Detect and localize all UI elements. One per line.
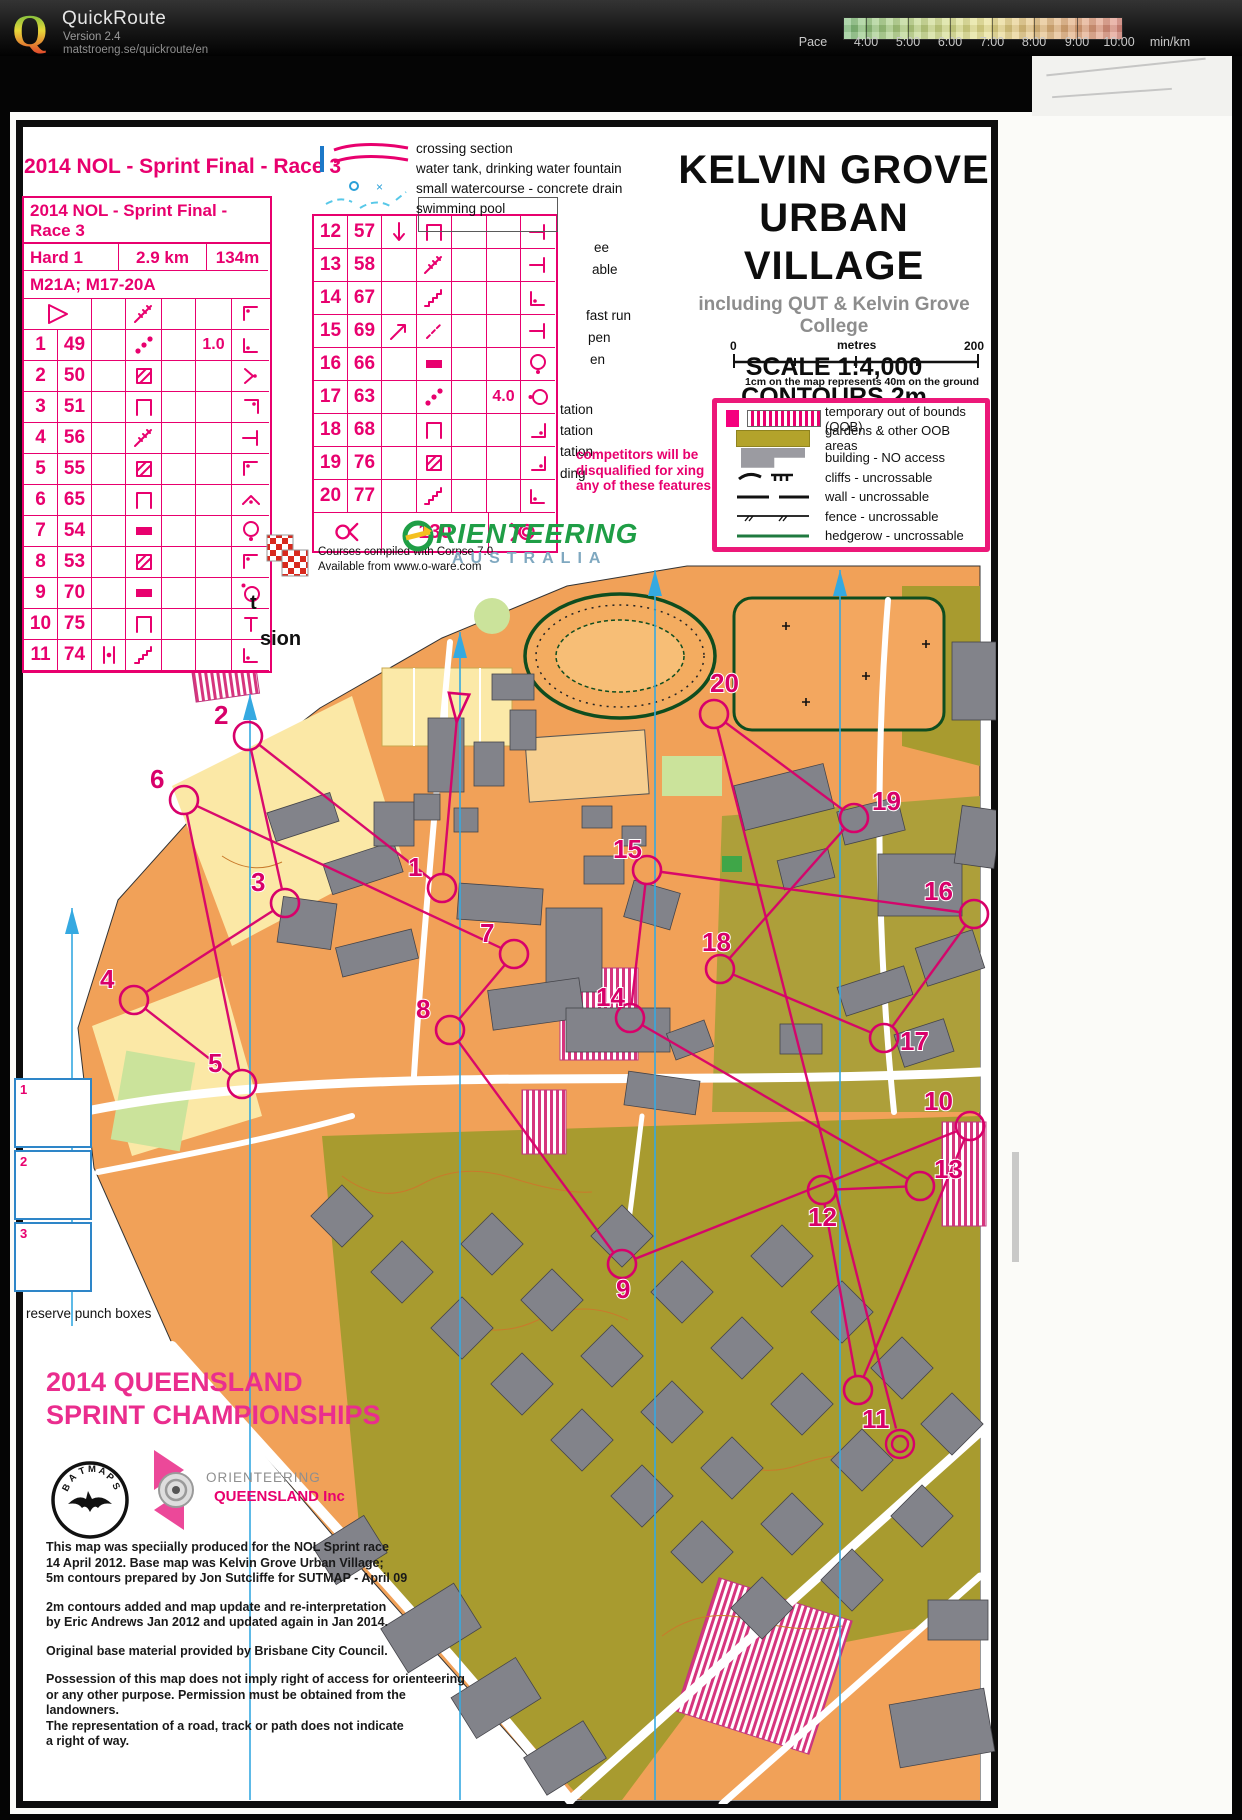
control-number: 13 bbox=[314, 249, 348, 282]
championships-line: SPRINT CHAMPIONSHIPS bbox=[46, 1399, 381, 1432]
control-number-label: 2 bbox=[214, 700, 228, 730]
down-arrow-icon bbox=[386, 219, 412, 245]
app-title: QuickRoute bbox=[62, 8, 166, 30]
warning-line: any of these features bbox=[576, 478, 736, 494]
control-code: 54 bbox=[58, 516, 92, 547]
control-number: 3 bbox=[24, 392, 58, 423]
svg-text:P: P bbox=[104, 1471, 116, 1484]
oob-legend-item: building - NO access bbox=[721, 448, 981, 468]
dots-diag-icon bbox=[131, 332, 157, 358]
control-number-label: 15 bbox=[613, 834, 642, 864]
control-grid-right: 1257135814671569166617634.0186819762077 bbox=[314, 216, 556, 513]
junction-icon bbox=[238, 363, 264, 389]
control-circle-2 bbox=[234, 722, 262, 750]
legend-line: crossing section bbox=[416, 139, 646, 159]
credits-paragraph: This map was speciially produced for the… bbox=[46, 1540, 466, 1587]
svg-text:Q: Q bbox=[12, 5, 48, 54]
canopy-icon bbox=[131, 394, 157, 420]
warning-line: disqualified for xing bbox=[576, 463, 736, 479]
stairway-icon bbox=[131, 301, 157, 327]
scale-bar: 0 metres 200 bbox=[722, 340, 990, 372]
oq-logo-icon bbox=[150, 1448, 220, 1538]
control-row-4: 456 bbox=[24, 423, 270, 454]
control-row-17: 17634.0 bbox=[314, 381, 556, 414]
control-number: 16 bbox=[314, 348, 348, 381]
pace-label: Pace bbox=[799, 35, 828, 49]
text-fragment: pen bbox=[588, 330, 611, 345]
punch-box-3: 3 bbox=[14, 1222, 92, 1292]
pace-tick-mark bbox=[1077, 17, 1078, 40]
control-code: 63 bbox=[348, 381, 382, 414]
text-fragment: ee bbox=[594, 240, 609, 255]
control-number: 5 bbox=[24, 454, 58, 485]
orienteering-queensland-logo: ORIENTEERING QUEENSLAND Inc bbox=[150, 1448, 390, 1538]
olive-swatch bbox=[736, 430, 810, 447]
steps-icon bbox=[421, 285, 447, 311]
control-row-6: 665 bbox=[24, 485, 270, 516]
oob-stripes-swatch bbox=[747, 410, 821, 427]
svg-text:×: × bbox=[376, 180, 383, 194]
credits-paragraph: 2m contours added and map update and re-… bbox=[46, 1600, 466, 1631]
control-row-8: 853 bbox=[24, 547, 270, 578]
orienteering-australia-logo: RIENTEERING AUSTRALIA bbox=[398, 514, 658, 584]
corner-sw-icon bbox=[238, 332, 264, 358]
course-name: 2014 NOL - Sprint Final - Race 3 bbox=[24, 198, 270, 244]
control-number-label: 19 bbox=[872, 786, 901, 816]
bend-icon bbox=[238, 487, 264, 513]
stairway-icon bbox=[131, 425, 157, 451]
control-number-label: 10 bbox=[924, 1086, 953, 1116]
oob-legend-item: wall - uncrossable bbox=[721, 487, 981, 507]
oob-legend-item: gardens & other OOB areas bbox=[721, 429, 981, 449]
corner-sw-icon bbox=[525, 483, 551, 509]
control-number: 20 bbox=[314, 480, 348, 513]
course-age-classes: M21A; M17-20A bbox=[24, 271, 270, 299]
building-swatch bbox=[741, 448, 805, 468]
oob-legend-label: hedgerow - uncrossable bbox=[825, 528, 964, 543]
oa-logo-icon bbox=[398, 514, 438, 554]
start-icon bbox=[45, 301, 71, 327]
app-version: Version 2.4 bbox=[63, 31, 121, 43]
filled-rect-icon bbox=[131, 580, 157, 606]
control-code: 55 bbox=[58, 454, 92, 485]
svg-text:S: S bbox=[109, 1481, 122, 1492]
control-code: 49 bbox=[58, 330, 92, 361]
control-number: 10 bbox=[24, 609, 58, 640]
punch-box-2: 2 bbox=[14, 1150, 92, 1220]
control-code: 77 bbox=[348, 480, 382, 513]
credits-paragraph: Possession of this map does not imply ri… bbox=[46, 1672, 466, 1750]
text-fragment: sion bbox=[260, 628, 301, 651]
text-fragment: tation bbox=[560, 402, 593, 417]
control-code: 50 bbox=[58, 361, 92, 392]
start-row bbox=[24, 299, 270, 330]
map-title-block: KELVIN GROVE URBAN VILLAGE including QUT… bbox=[664, 146, 1004, 412]
control-code: 68 bbox=[348, 414, 382, 447]
control-row-20: 2077 bbox=[314, 480, 556, 513]
corner-nw-icon bbox=[238, 456, 264, 482]
oa-logo-text1: RIENTEERING bbox=[436, 518, 638, 550]
control-row-7: 754 bbox=[24, 516, 270, 547]
oob-legend-label: wall - uncrossable bbox=[825, 489, 929, 504]
oa-logo-text2: AUSTRALIA bbox=[452, 550, 607, 568]
control-number: 19 bbox=[314, 447, 348, 480]
t-bar-icon bbox=[525, 252, 551, 278]
control-row-2: 250 bbox=[24, 361, 270, 392]
taped-start-icon bbox=[333, 517, 363, 547]
quickroute-screenshot: { "header": { "app_title": "QuickRoute",… bbox=[0, 0, 1242, 1820]
control-code: 76 bbox=[348, 447, 382, 480]
hatch-sq-icon bbox=[131, 456, 157, 482]
control-row-13: 1358 bbox=[314, 249, 556, 282]
pace-tick-label: 10:00 bbox=[1103, 35, 1134, 49]
control-row-5: 555 bbox=[24, 454, 270, 485]
svg-text:M: M bbox=[88, 1464, 96, 1475]
batmaps-logo: B A T M A P S bbox=[48, 1458, 132, 1542]
control-code: 69 bbox=[348, 315, 382, 348]
oob-legend-item: fence - uncrossable bbox=[721, 507, 981, 527]
circle-dot-bottom-icon bbox=[238, 518, 264, 544]
control-number-label: 20 bbox=[710, 668, 739, 698]
legend-line: swimming pool bbox=[416, 199, 646, 219]
control-number: 9 bbox=[24, 578, 58, 609]
pace-tick-mark bbox=[866, 17, 867, 40]
map-subtitle: including QUT & Kelvin Grove College bbox=[664, 294, 1004, 338]
text-fragment: en bbox=[590, 352, 605, 367]
control-code: 58 bbox=[348, 249, 382, 282]
corner-se-icon bbox=[525, 417, 551, 443]
legend-line: water tank, drinking water fountain bbox=[416, 159, 646, 179]
pace-tick-mark bbox=[950, 17, 951, 40]
warning-line: competitors will be bbox=[576, 447, 736, 463]
credits-paragraph: Original base material provided by Brisb… bbox=[46, 1644, 466, 1660]
t-bar-icon bbox=[525, 318, 551, 344]
control-row-10: 1075 bbox=[24, 609, 270, 640]
oob-legend-box: temporary out of bounds (OOB)gardens & o… bbox=[712, 398, 990, 552]
championships-title: 2014 QUEENSLANDSPRINT CHAMPIONSHIPS bbox=[46, 1366, 381, 1432]
oob-chip bbox=[726, 410, 739, 427]
control-number-label: 6 bbox=[150, 764, 164, 794]
canopy-icon bbox=[421, 417, 447, 443]
control-row-15: 1569 bbox=[314, 315, 556, 348]
control-code: 56 bbox=[58, 423, 92, 454]
control-number-label: 3 bbox=[251, 867, 265, 897]
text-fragment: t bbox=[250, 592, 257, 615]
checkered-flag-icon bbox=[264, 532, 314, 582]
control-code: 70 bbox=[58, 578, 92, 609]
filled-rect-icon bbox=[131, 518, 157, 544]
map-title-line1: KELVIN GROVE bbox=[664, 146, 1004, 194]
control-number-label: 5 bbox=[208, 1048, 222, 1078]
control-number: 6 bbox=[24, 485, 58, 516]
scan-streak bbox=[1012, 1152, 1019, 1262]
hatch-sq-icon bbox=[131, 549, 157, 575]
filled-rect-icon bbox=[421, 351, 447, 377]
corner-nw-icon bbox=[238, 549, 264, 575]
control-number-label: 12 bbox=[808, 1202, 837, 1232]
svg-text:0: 0 bbox=[730, 340, 737, 353]
control-number: 4 bbox=[24, 423, 58, 454]
map-title-line2: URBAN VILLAGE bbox=[664, 194, 1004, 290]
control-row-11: 1174 bbox=[24, 640, 270, 671]
control-code: 66 bbox=[348, 348, 382, 381]
scale-note: 1cm on the map represents 40m on the gro… bbox=[744, 376, 980, 388]
top-legend-symbols: × bbox=[316, 138, 416, 222]
control-number: 8 bbox=[24, 547, 58, 578]
control-code: 65 bbox=[58, 485, 92, 516]
course-title: 2014 NOL - Sprint Final - Race 3 bbox=[24, 155, 354, 179]
control-row-19: 1976 bbox=[314, 447, 556, 480]
text-fragment: able bbox=[592, 262, 618, 277]
canopy-icon bbox=[131, 611, 157, 637]
svg-text:A: A bbox=[66, 1472, 78, 1485]
control-row-18: 1868 bbox=[314, 414, 556, 447]
course-length: 2.9 km bbox=[119, 244, 207, 271]
control-row-1: 1491.0 bbox=[24, 330, 270, 361]
oob-legend-item: cliffs - uncrossable bbox=[721, 468, 981, 488]
control-number-label: 18 bbox=[702, 927, 731, 957]
oq-logo-text1: ORIENTEERING bbox=[206, 1470, 321, 1485]
control-number-label: 7 bbox=[480, 918, 494, 948]
control-row-14: 1467 bbox=[314, 282, 556, 315]
canopy-icon bbox=[131, 487, 157, 513]
control-row-3: 351 bbox=[24, 392, 270, 423]
hatch-sq-icon bbox=[131, 363, 157, 389]
control-descriptions-right: 1257135814671569166617634.0186819762077 … bbox=[312, 214, 558, 553]
quickroute-logo-icon: Q bbox=[8, 4, 58, 54]
oob-legend-label: building - NO access bbox=[825, 450, 945, 465]
steps-icon bbox=[421, 483, 447, 509]
control-number-label: 1 bbox=[408, 852, 422, 882]
quickroute-header-bar: Q QuickRoute Version 2.4 matstroeng.se/q… bbox=[0, 0, 1242, 56]
control-code: 51 bbox=[58, 392, 92, 423]
control-grid-left: 1491.025035145655566575485397010751174 bbox=[24, 299, 270, 671]
control-number: 11 bbox=[24, 640, 58, 671]
pace-tick-mark bbox=[992, 17, 993, 40]
svg-text:metres: metres bbox=[837, 340, 877, 352]
oob-legend-label: fence - uncrossable bbox=[825, 509, 938, 524]
control-number-label: 16 bbox=[924, 876, 953, 906]
dashed-diag-icon bbox=[421, 318, 447, 344]
svg-text:T: T bbox=[77, 1465, 86, 1477]
control-number-label: 17 bbox=[900, 1026, 929, 1056]
control-number: 2 bbox=[24, 361, 58, 392]
pace-tick-mark bbox=[908, 17, 909, 40]
ne-arrow-icon bbox=[386, 318, 412, 344]
control-number: 17 bbox=[314, 381, 348, 414]
legend-line: small watercourse - concrete drain bbox=[416, 179, 646, 199]
map-credits: This map was speciially produced for the… bbox=[46, 1540, 466, 1763]
app-site-url: matstroeng.se/quickroute/en bbox=[63, 44, 208, 56]
svg-text:200: 200 bbox=[964, 340, 984, 353]
control-number: 15 bbox=[314, 315, 348, 348]
corner-sw-icon bbox=[525, 285, 551, 311]
control-code: 53 bbox=[58, 547, 92, 578]
control-number: 18 bbox=[314, 414, 348, 447]
control-number: 14 bbox=[314, 282, 348, 315]
t-bar-icon bbox=[238, 425, 264, 451]
reserve-punch-label: reserve punch boxes bbox=[26, 1306, 151, 1321]
map-symbol-legend: crossing sectionwater tank, drinking wat… bbox=[416, 139, 646, 219]
control-code: 75 bbox=[58, 609, 92, 640]
control-number-label: 8 bbox=[416, 994, 430, 1024]
control-number-label: 14 bbox=[596, 982, 625, 1012]
dots-diag-icon bbox=[421, 384, 447, 410]
steps-icon bbox=[131, 642, 157, 668]
corner-se-icon bbox=[525, 450, 551, 476]
oob-legend-label: gardens & other OOB areas bbox=[825, 423, 981, 453]
control-row-16: 1666 bbox=[314, 348, 556, 381]
control-number: 1 bbox=[24, 330, 58, 361]
control-number-label: 13 bbox=[934, 1154, 963, 1184]
oq-logo-text2: QUEENSLAND Inc bbox=[214, 1488, 345, 1505]
hatch-sq-icon bbox=[421, 450, 447, 476]
pace-unit: min/km bbox=[1150, 35, 1190, 49]
disqualification-warning: competitors will bedisqualified for xing… bbox=[576, 447, 736, 494]
control-row-9: 970 bbox=[24, 578, 270, 609]
text-fragment: tation bbox=[560, 423, 593, 438]
control-number-label: 9 bbox=[616, 1274, 630, 1304]
reserve-punch-boxes: 123 bbox=[14, 1078, 94, 1294]
svg-text:B: B bbox=[60, 1482, 73, 1493]
control-number-label: 4 bbox=[100, 964, 115, 994]
circle-dot-bottom-icon bbox=[525, 351, 551, 377]
course-class: Hard 1 bbox=[24, 244, 119, 271]
stairway-icon bbox=[421, 252, 447, 278]
oob-legend-label: cliffs - uncrossable bbox=[825, 470, 932, 485]
punch-box-1: 1 bbox=[14, 1078, 92, 1148]
championships-line: 2014 QUEENSLAND bbox=[46, 1366, 381, 1399]
control-number-label: 11 bbox=[862, 1404, 890, 1434]
corner-ne-icon bbox=[238, 394, 264, 420]
corner-nw-icon bbox=[238, 301, 264, 327]
control-number: 7 bbox=[24, 516, 58, 547]
course-climb: 134m bbox=[207, 244, 268, 271]
pace-tick-mark bbox=[1034, 17, 1035, 40]
between-icon bbox=[96, 642, 122, 668]
oob-legend-item: hedgerow - uncrossable bbox=[721, 526, 981, 546]
circle-dot-left-icon bbox=[525, 384, 551, 410]
control-descriptions-left: 2014 NOL - Sprint Final - Race 3 Hard 1 … bbox=[22, 196, 272, 673]
control-code: 67 bbox=[348, 282, 382, 315]
text-fragment: fast run bbox=[586, 308, 631, 323]
control-code: 74 bbox=[58, 640, 92, 671]
